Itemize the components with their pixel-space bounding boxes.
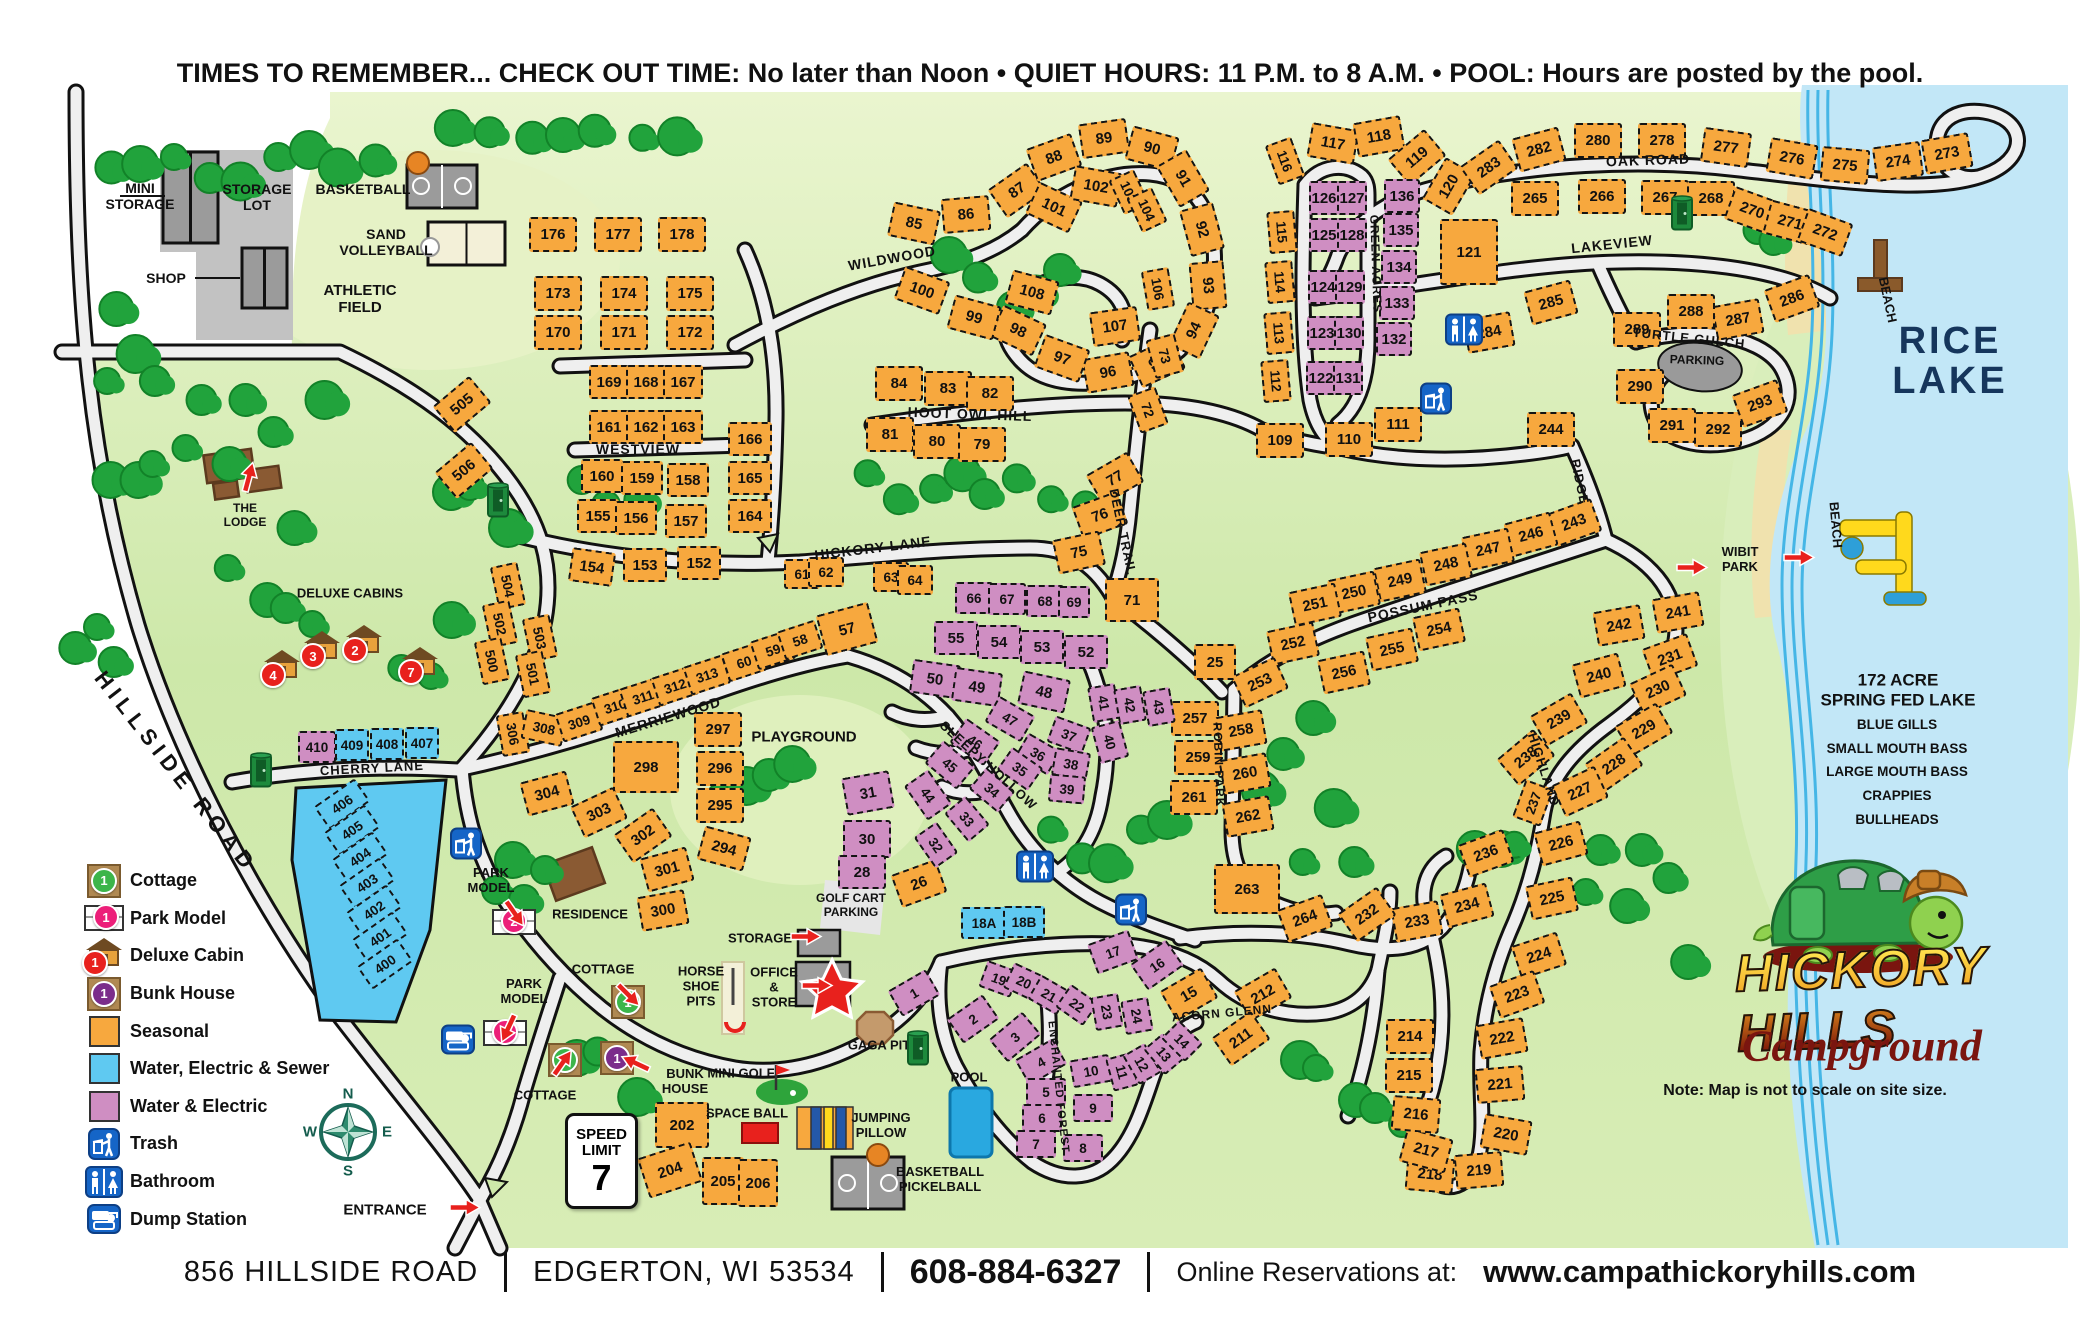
site-133: 133 [1379,286,1415,320]
legend-label: Deluxe Cabin [130,945,244,966]
porta-icon [907,1030,929,1071]
sw-seasonal-icon [84,1016,124,1047]
legend-item-cottage: 1Cottage [84,862,329,900]
site-242: 242 [1592,604,1645,647]
site-30: 30 [843,820,891,858]
site-43: 43 [1142,687,1176,727]
site-64: 64 [897,565,933,595]
legend-label: Seasonal [130,1021,209,1042]
site-241: 241 [1651,591,1704,634]
site-161: 161 [589,410,629,444]
footer-url: www.campathickoryhills.com [1483,1254,1916,1290]
site-8: 8 [1063,1134,1103,1162]
site-257: 257 [1171,701,1219,736]
site-170: 170 [534,315,582,350]
site-265: 265 [1511,181,1559,216]
legend-label: Water, Electric & Sewer [130,1058,329,1079]
trash-icon [1420,383,1452,420]
site-152: 152 [677,546,721,580]
site-122: 122 [1306,361,1336,395]
campground-map: 1761771781731741751701711721691681671611… [0,0,2100,1333]
site-18A: 18A [961,907,1007,939]
site-86: 86 [941,194,992,233]
site-164: 164 [728,499,772,533]
site-408: 408 [370,728,404,760]
cottage-icon: 1 [84,864,124,898]
footer-city: EDGERTON, WI 53534 [533,1256,855,1289]
site-107: 107 [1089,305,1141,346]
footer-phone: 608-884-6327 [910,1253,1122,1292]
site-93: 93 [1188,260,1227,311]
red-arrow-icon [448,1199,482,1222]
bunk-icon: 1 [84,977,124,1011]
site-115: 115 [1266,210,1298,254]
site-166: 166 [728,422,772,456]
legend-label: Water & Electric [130,1096,267,1117]
parkmodel-icon: 1 [84,905,124,931]
site-410: 410 [298,731,336,763]
legend-item-seasonal: Seasonal [84,1012,329,1050]
site-81: 81 [866,417,914,452]
footer-reservations-label: Online Reservations at: [1176,1257,1457,1288]
site-79: 79 [958,427,1006,462]
site-290: 290 [1616,369,1664,404]
site-175: 175 [666,276,714,311]
footer: 856 HILLSIDE ROAD EDGERTON, WI 53534 608… [0,1252,2100,1292]
site-233: 233 [1390,900,1443,943]
site-259: 259 [1174,740,1222,775]
legend-item-bunk-house: 1Bunk House [84,975,329,1013]
red-arrow-icon [789,928,823,951]
cabin-marker-7: 7 [398,645,442,685]
site-292: 292 [1694,412,1742,447]
footer-separator [504,1252,507,1292]
site-163: 163 [663,410,703,444]
site-83: 83 [924,371,972,406]
legend-item-water-electric-sewer: Water, Electric & Sewer [84,1050,329,1088]
site-261: 261 [1170,780,1218,815]
site-55: 55 [934,621,978,655]
site-6: 6 [1022,1104,1062,1132]
site-25: 25 [1194,644,1236,680]
site-407: 407 [405,727,439,759]
site-111: 111 [1374,407,1422,442]
porta-icon [487,482,509,523]
legend-label: Cottage [130,870,197,891]
site-165: 165 [728,461,772,495]
site-123: 123 [1307,316,1337,350]
site-260: 260 [1218,752,1271,795]
site-219: 219 [1454,1150,1505,1189]
site-134: 134 [1381,250,1417,284]
site-300: 300 [636,889,689,932]
site-124: 124 [1308,270,1338,304]
site-167: 167 [663,365,703,399]
site-291: 291 [1648,408,1696,443]
site-67: 67 [988,583,1026,615]
times-to-remember-banner: TIMES TO REMEMBER... CHECK OUT TIME: No … [60,58,2040,89]
site-273: 273 [1920,132,1973,175]
site-42: 42 [1113,685,1147,725]
site-158: 158 [667,463,709,497]
site-159: 159 [621,461,663,495]
site-23: 23 [1090,993,1123,1031]
site-277: 277 [1700,126,1752,167]
site-298: 298 [613,741,679,793]
site-89: 89 [1078,117,1130,158]
footer-separator [881,1252,884,1292]
site-154: 154 [568,547,616,587]
legend-item-trash: Trash [84,1125,329,1163]
site-52: 52 [1064,635,1108,669]
dump-icon [84,1204,124,1234]
trash-icon [450,828,482,865]
site-155: 155 [577,499,619,533]
site-125: 125 [1309,218,1339,252]
site-169: 169 [589,365,629,399]
site-171: 171 [600,315,648,350]
site-127: 127 [1337,181,1367,215]
site-176: 176 [529,217,577,252]
sw-wes-icon [84,1053,124,1084]
site-280: 280 [1574,123,1622,158]
trash-icon [84,1128,124,1160]
trash-icon [1115,894,1147,931]
site-289: 289 [1613,312,1661,347]
legend-label: Bathroom [130,1171,215,1192]
site-215: 215 [1385,1058,1433,1093]
speed-sign-number: 7 [591,1160,611,1196]
site-130: 130 [1334,316,1364,350]
site-135: 135 [1383,213,1419,247]
red-arrow-icon [1782,549,1816,572]
site-168: 168 [626,365,666,399]
legend-item-dump-station: Dump Station [84,1200,329,1238]
site-214: 214 [1386,1019,1434,1054]
site-153: 153 [623,548,667,582]
site-178: 178 [658,217,706,252]
cabin-marker-3: 3 [300,629,344,669]
site-216: 216 [1391,1094,1442,1133]
site-7: 7 [1016,1130,1056,1158]
site-39: 39 [1048,773,1086,804]
site-262: 262 [1221,795,1274,838]
sw-we-icon [84,1091,124,1122]
site-295: 295 [696,788,744,823]
cabin-marker-4: 4 [260,648,304,688]
porta-icon [250,752,272,793]
site-9: 9 [1073,1094,1113,1122]
site-132: 132 [1376,322,1412,356]
site-202: 202 [655,1102,709,1148]
red-arrow-icon [1675,559,1709,582]
site-244: 244 [1527,412,1575,447]
legend-label: Park Model [130,908,226,929]
logo-subtitle: Campground [1742,1021,1982,1072]
speed-limit-sign: SPEED LIMIT 7 [565,1113,638,1209]
site-409: 409 [335,729,369,761]
site-274: 274 [1872,140,1924,181]
cabin-marker-2: 2 [342,623,386,663]
site-287: 287 [1711,298,1764,341]
porta-icon [1671,195,1693,236]
site-113: 113 [1263,311,1295,355]
site-129: 129 [1335,270,1365,304]
site-18B: 18B [1003,906,1045,938]
site-109: 109 [1256,423,1304,458]
site-84: 84 [875,366,923,401]
site-112: 112 [1260,359,1292,403]
site-173: 173 [534,276,582,311]
red-arrow-icon [800,977,834,1000]
legend-item-park-model: 1Park Model [84,900,329,938]
site-177: 177 [594,217,642,252]
site-136: 136 [1384,179,1420,213]
site-162: 162 [626,410,666,444]
site-296: 296 [696,751,744,786]
map-legend: 1Cottage1Park Model1Deluxe Cabin1Bunk Ho… [84,862,329,1238]
site-69: 69 [1058,586,1090,618]
site-275: 275 [1820,145,1871,184]
site-80: 80 [913,424,961,459]
site-297: 297 [694,712,742,747]
footer-address: 856 HILLSIDE ROAD [184,1256,478,1289]
site-53: 53 [1020,630,1064,664]
banner-text: TIMES TO REMEMBER... CHECK OUT TIME: No … [177,58,1924,88]
site-114: 114 [1264,260,1296,304]
legend-label: Trash [130,1133,178,1154]
site-96: 96 [1081,351,1134,394]
bathroom-icon [84,1166,124,1198]
site-288: 288 [1667,294,1715,329]
site-126: 126 [1309,181,1339,215]
site-71: 71 [1105,578,1159,622]
dump-icon [441,1025,475,1060]
bathroom-icon [1016,851,1054,888]
site-110: 110 [1325,422,1373,457]
site-206: 206 [738,1159,778,1207]
site-24: 24 [1120,997,1153,1035]
site-160: 160 [581,459,623,493]
cabin-icon: 1 [84,936,124,976]
site-62: 62 [808,557,844,587]
footer-separator [1147,1252,1150,1292]
site-266: 266 [1578,179,1626,214]
legend-label: Dump Station [130,1209,247,1230]
site-222: 222 [1475,1017,1528,1060]
site-121: 121 [1440,219,1498,285]
bathroom-icon [1445,314,1483,351]
site-82: 82 [966,376,1014,411]
site-221: 221 [1475,1064,1526,1103]
legend-label: Bunk House [130,983,235,1004]
site-278: 278 [1638,123,1686,158]
site-172: 172 [666,315,714,350]
site-54: 54 [977,625,1021,659]
site-263: 263 [1214,864,1280,914]
site-5: 5 [1026,1078,1066,1106]
legend-item-bathroom: Bathroom [84,1163,329,1201]
site-258: 258 [1214,709,1267,752]
site-174: 174 [600,276,648,311]
legend-item-deluxe-cabin: 1Deluxe Cabin [84,937,329,975]
speed-sign-line1: SPEED [576,1127,627,1144]
legend-item-water-electric: Water & Electric [84,1088,329,1126]
site-131: 131 [1333,361,1363,395]
site-28: 28 [838,855,886,889]
site-156: 156 [615,501,657,535]
site-128: 128 [1337,218,1367,252]
site-157: 157 [665,504,707,538]
